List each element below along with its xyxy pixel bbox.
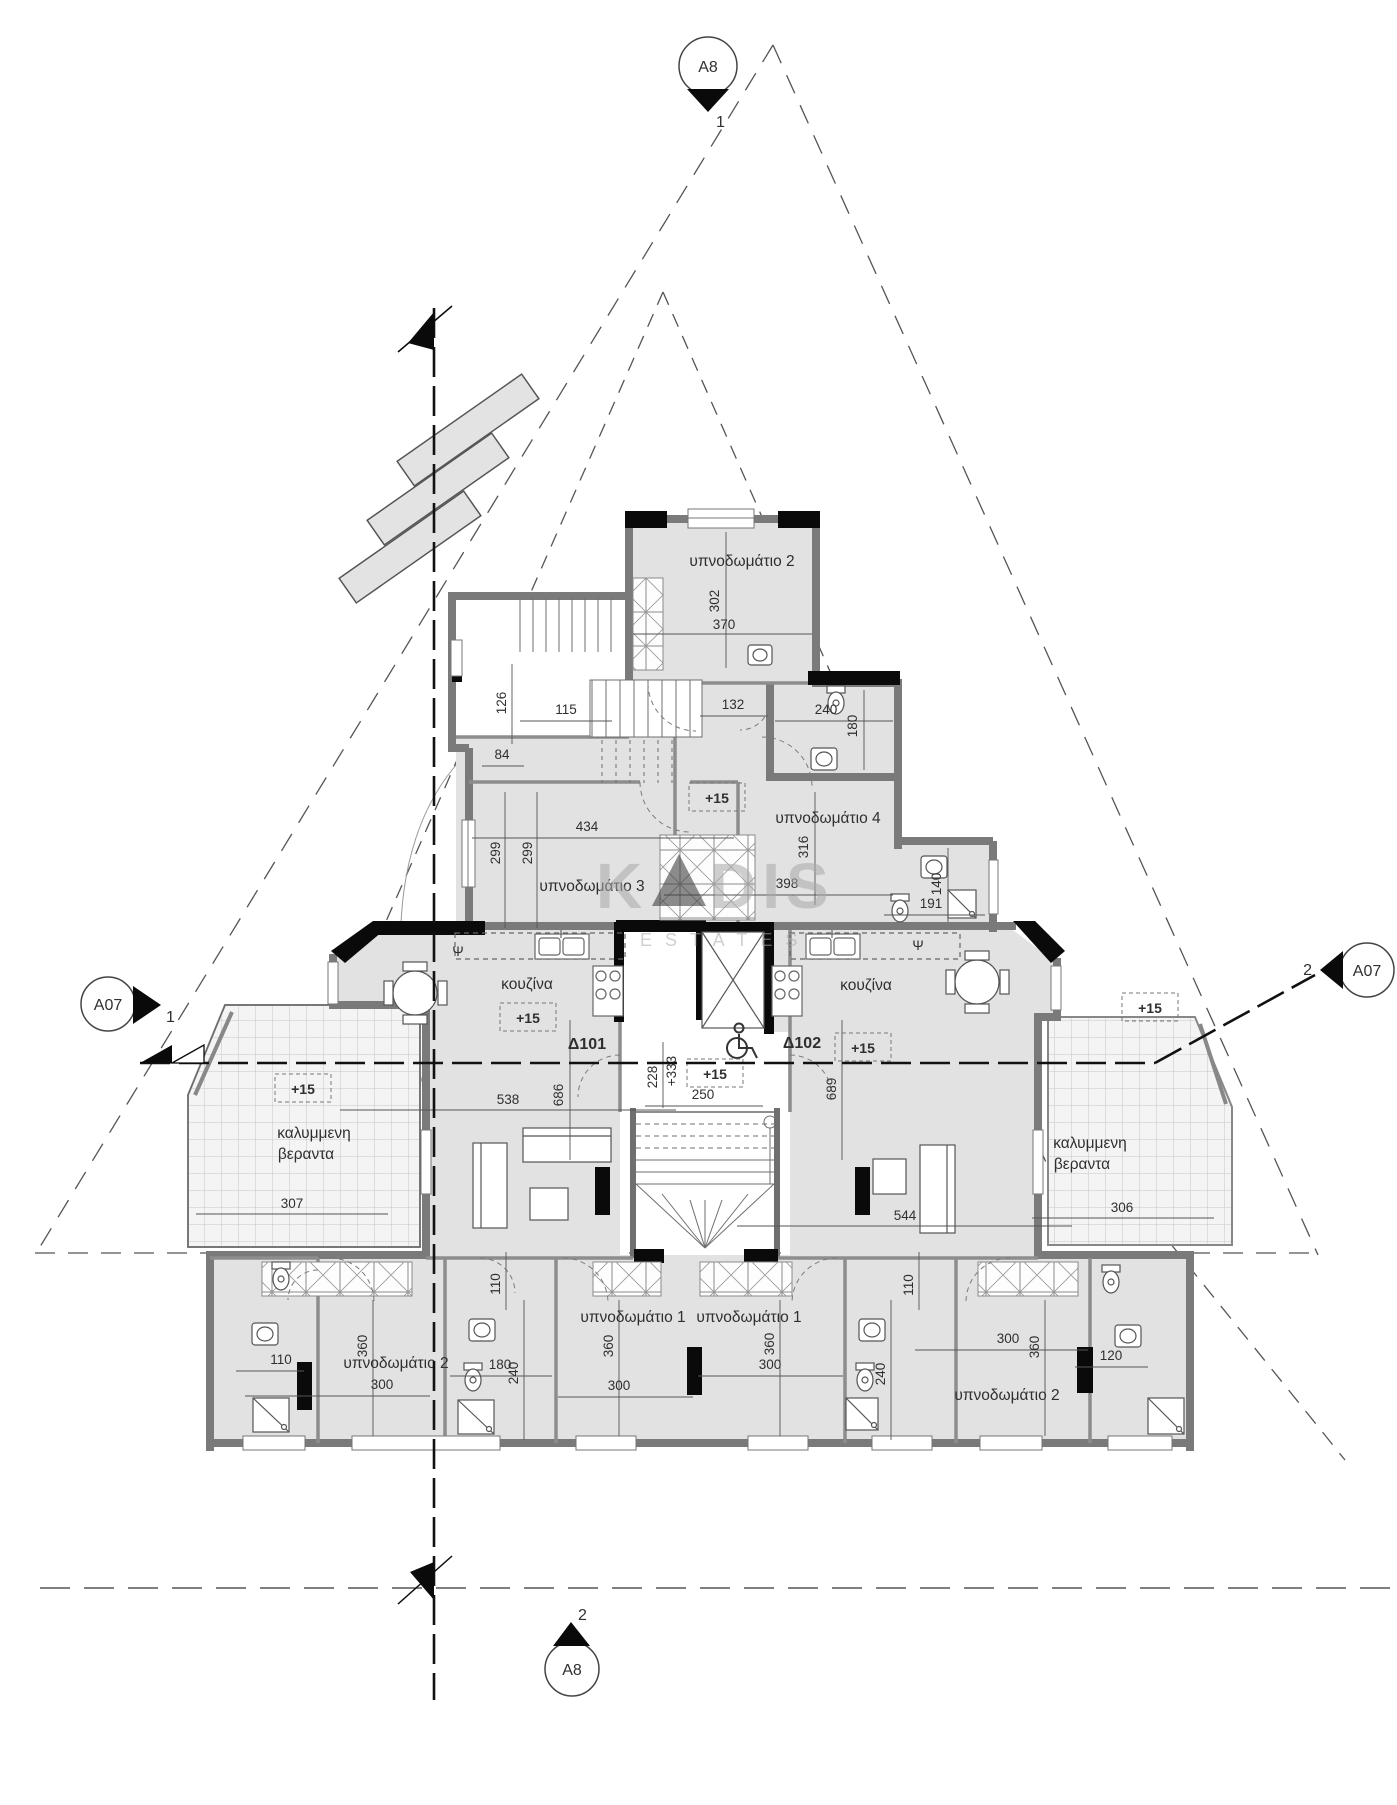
stove xyxy=(593,966,623,1016)
section-marker-a07-left-label: A07 xyxy=(94,997,123,1014)
toilet xyxy=(464,1363,482,1391)
shower xyxy=(846,1398,878,1430)
dim-370: 370 xyxy=(713,617,736,632)
sofa xyxy=(523,1128,611,1162)
pergola-slats xyxy=(339,374,539,603)
room-label-kitchen-right: κουζίνα xyxy=(840,977,892,994)
fridge-symbol-right: Ψ xyxy=(912,938,923,953)
sink xyxy=(469,1319,495,1341)
section-marker-a07-left-number: 1 xyxy=(166,1009,175,1026)
dim-120: 120 xyxy=(1100,1348,1123,1363)
dim-140: 140 xyxy=(929,873,944,896)
room-label-veranda-right-2: βεραντα xyxy=(1054,1156,1110,1173)
veranda-right xyxy=(1048,1017,1232,1245)
level-plus15-veranda-right: +15 xyxy=(1138,1000,1162,1016)
dim-686: 686 xyxy=(551,1084,566,1107)
section-marker-a8-top-label: A8 xyxy=(698,59,718,76)
dim-84: 84 xyxy=(494,747,510,762)
dim-110b: 110 xyxy=(488,1273,503,1295)
apartment-label-d101: Δ101 xyxy=(568,1036,606,1053)
room-label-bedroom1-right: υπνοδωμάτιο 1 xyxy=(696,1309,801,1326)
dim-240b: 240 xyxy=(506,1362,521,1385)
sink xyxy=(1115,1325,1141,1347)
shower xyxy=(1148,1398,1184,1434)
section-marker-a07-left: A07 1 xyxy=(81,977,175,1031)
coffee-table xyxy=(530,1188,568,1220)
toilet xyxy=(891,894,909,922)
sink xyxy=(859,1319,885,1341)
dim-300a: 300 xyxy=(371,1377,394,1392)
level-plus15-hall-top: +15 xyxy=(705,790,729,806)
dim-360b: 360 xyxy=(601,1335,616,1358)
kitchen-sink xyxy=(806,930,860,959)
section-marker-a07-right-label: A07 xyxy=(1353,963,1382,980)
shower xyxy=(253,1398,289,1432)
dim-300c: 300 xyxy=(759,1357,782,1372)
dim-299b: 299 xyxy=(520,842,535,865)
dim-302: 302 xyxy=(707,590,722,613)
dim-306: 306 xyxy=(1111,1200,1134,1215)
dim-360c: 360 xyxy=(762,1333,777,1356)
dim-228: 228 xyxy=(645,1066,660,1089)
watermark-k: K xyxy=(596,850,648,922)
watermark-dis: DIS xyxy=(710,850,835,922)
sink xyxy=(811,748,837,770)
dim-191: 191 xyxy=(920,896,943,911)
dim-689: 689 xyxy=(824,1078,839,1101)
stove xyxy=(772,966,802,1016)
level-plus15-kitchen-left: +15 xyxy=(516,1010,540,1026)
apartment-label-d102: Δ102 xyxy=(783,1035,821,1052)
sofa xyxy=(473,1143,507,1228)
dim-180: 180 xyxy=(845,715,860,738)
section-marker-a8-bottom-label: A8 xyxy=(562,1662,582,1679)
level-plus15-hall-center: +15 xyxy=(703,1066,727,1082)
section-marker-a07-right-number: 2 xyxy=(1303,962,1312,979)
room-label-veranda-right-1: καλυμμενη xyxy=(1053,1135,1127,1152)
toilet xyxy=(856,1363,874,1391)
section-marker-a8-bottom: A8 2 xyxy=(545,1607,599,1696)
kitchen-sink xyxy=(535,930,589,959)
room-label-kitchen-left: κουζίνα xyxy=(501,976,553,993)
sink xyxy=(748,645,772,665)
watermark-estates: ESTATES xyxy=(640,930,810,950)
dim-300b: 300 xyxy=(608,1378,631,1393)
level-plus15-kitchen-right: +15 xyxy=(851,1040,875,1056)
level-plus15-veranda-left: +15 xyxy=(291,1081,315,1097)
dim-126: 126 xyxy=(494,692,509,715)
floor-plan-canvas: 302 370 126 115 84 132 240 180 434 299 2… xyxy=(0,0,1397,1805)
level-plus333: +333 xyxy=(664,1056,679,1086)
dim-132: 132 xyxy=(722,697,745,712)
fridge-symbol-left: Ψ xyxy=(452,944,463,959)
section-marker-a8-top: A8 1 xyxy=(679,37,737,131)
side-table xyxy=(873,1159,906,1194)
dim-300d: 300 xyxy=(997,1331,1020,1346)
floor-plan-page: 302 370 126 115 84 132 240 180 434 299 2… xyxy=(0,0,1397,1805)
dim-250: 250 xyxy=(692,1087,715,1102)
sofa xyxy=(920,1145,955,1233)
sink xyxy=(252,1323,278,1345)
room-label-veranda-left-2: βεραντα xyxy=(278,1146,334,1163)
dim-115: 115 xyxy=(555,702,577,717)
dim-544: 544 xyxy=(894,1208,917,1223)
room-label-bedroom2-top: υπνοδωμάτιο 2 xyxy=(689,553,794,570)
dim-110c: 110 xyxy=(901,1274,916,1296)
dim-240: 240 xyxy=(815,702,838,717)
dim-360d: 360 xyxy=(1027,1336,1042,1359)
toilet xyxy=(272,1262,290,1290)
room-label-bedroom1-left: υπνοδωμάτιο 1 xyxy=(580,1309,685,1326)
room-label-veranda-left-1: καλυμμενη xyxy=(277,1125,351,1142)
section-marker-a8-bottom-number: 2 xyxy=(578,1607,587,1624)
dim-110a: 110 xyxy=(270,1352,292,1367)
shower xyxy=(458,1400,494,1434)
shower xyxy=(948,890,976,918)
room-label-bedroom2-br: υπνοδωμάτιο 2 xyxy=(954,1387,1059,1404)
toilet xyxy=(1102,1265,1120,1293)
dim-299a: 299 xyxy=(488,842,503,865)
dim-434: 434 xyxy=(576,819,599,834)
dim-307: 307 xyxy=(281,1196,304,1211)
dim-538: 538 xyxy=(497,1092,520,1107)
section-marker-a07-right: A07 2 xyxy=(1303,943,1394,997)
dim-240c: 240 xyxy=(873,1363,888,1386)
section-marker-a8-top-number: 1 xyxy=(716,114,725,131)
room-label-bedroom4: υπνοδωμάτιο 4 xyxy=(775,810,881,827)
dim-360a: 360 xyxy=(355,1335,370,1358)
